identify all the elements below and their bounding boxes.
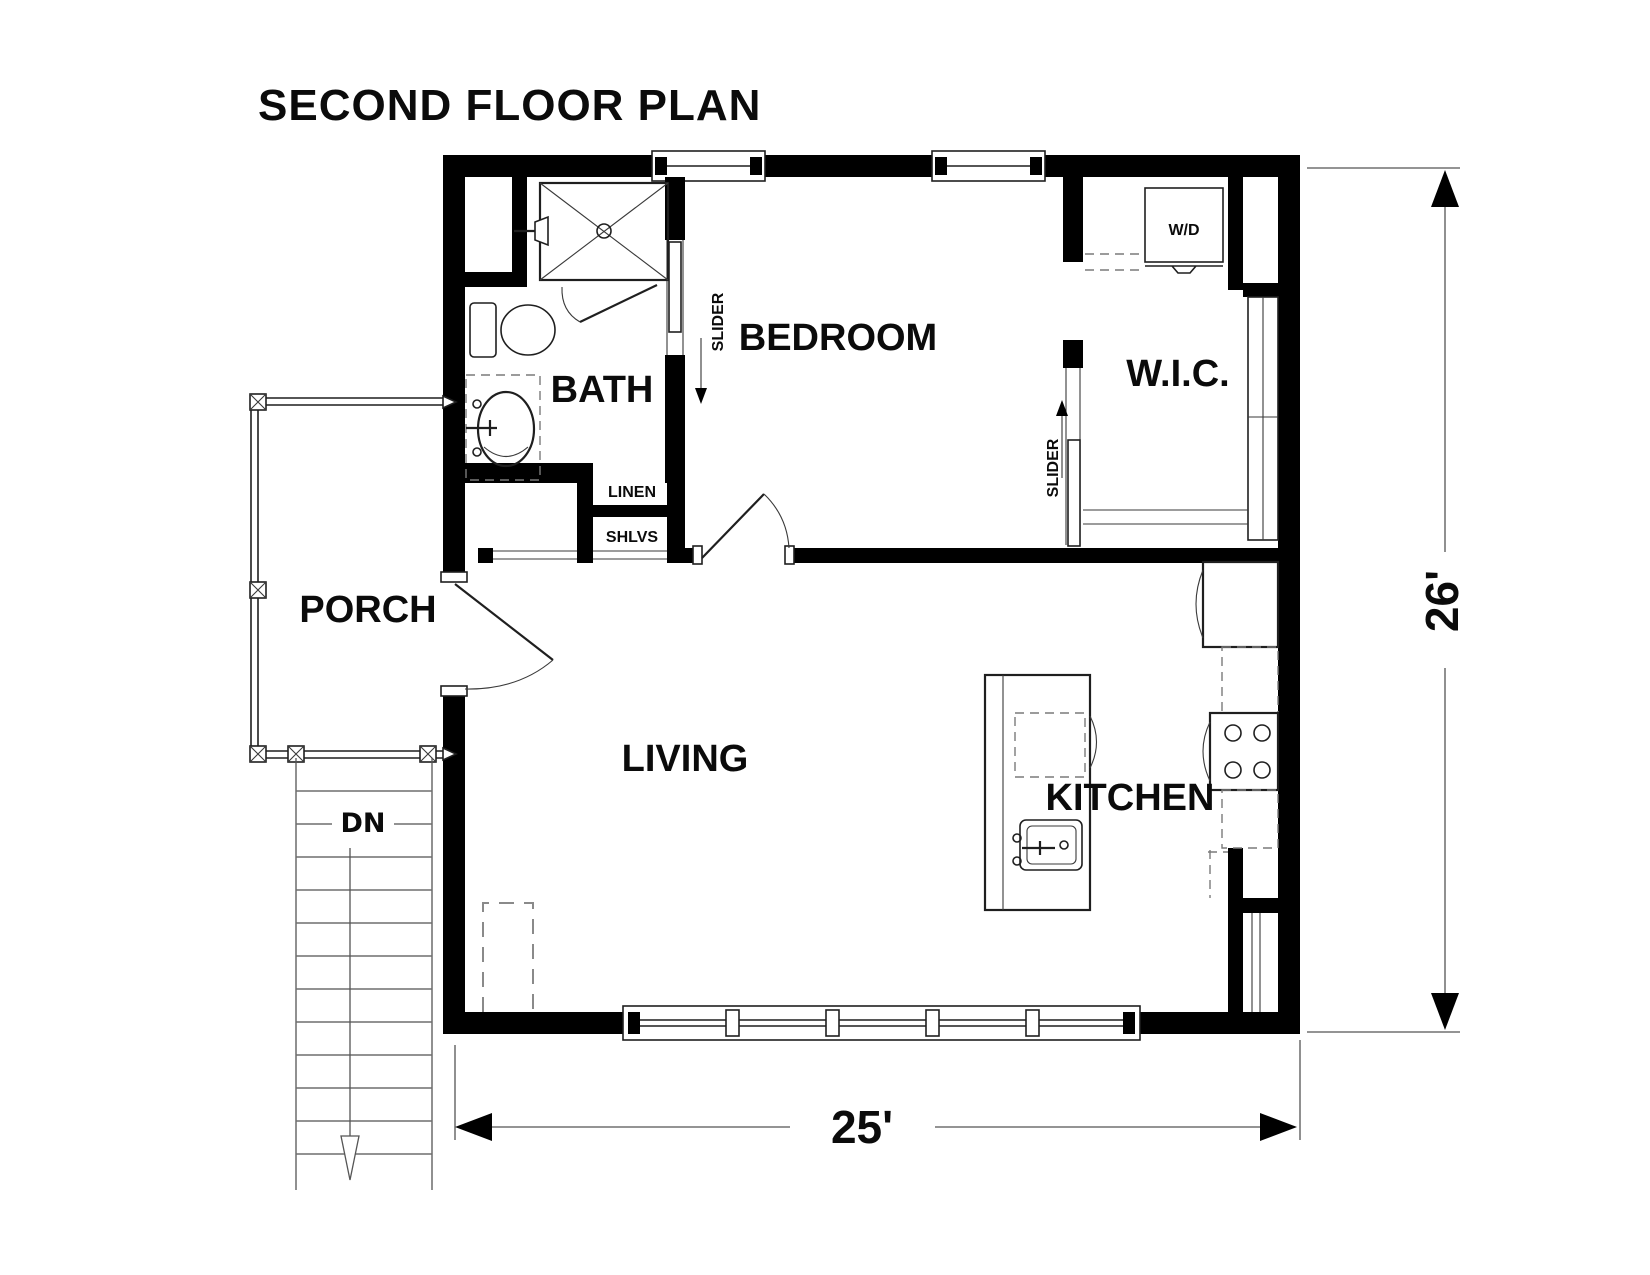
living-label: LIVING — [622, 738, 749, 780]
living-dashed-outline — [483, 903, 533, 1012]
bath-slider-label: SLIDER — [710, 292, 727, 351]
interior-walls — [443, 177, 1300, 1012]
floor-plan-page: SECOND FLOOR PLAN BATH BEDROOM W.I.C. PO… — [0, 0, 1650, 1275]
floor-plan-drawing: SECOND FLOOR PLAN BATH BEDROOM W.I.C. PO… — [0, 0, 1650, 1275]
wic-slider-label: SLIDER — [1045, 438, 1062, 497]
bedroom-window-left — [652, 151, 765, 181]
plan-title: SECOND FLOOR PLAN — [258, 81, 761, 130]
pantry-shelves — [1252, 913, 1260, 1012]
wic-closet-shelves — [1083, 297, 1278, 540]
washer-dryer-label: W/D — [1168, 222, 1199, 239]
living-window-band — [623, 1006, 1140, 1040]
bath-slider-arrow — [695, 338, 707, 404]
kitchen-counter-upper — [1222, 647, 1278, 713]
shower-door — [562, 285, 657, 322]
porch-railings — [251, 396, 456, 760]
toilet — [470, 303, 555, 357]
exterior-walls — [443, 155, 1300, 1034]
bedroom-window-right — [932, 151, 1045, 181]
bedroom-door — [693, 494, 794, 564]
porch-posts — [250, 394, 436, 762]
height-dimension-label: 26' — [1416, 570, 1468, 632]
refrigerator — [1196, 562, 1278, 647]
width-dimension-label: 25' — [831, 1101, 893, 1153]
washer-dryer-unit — [1085, 188, 1223, 273]
bedroom-label: BEDROOM — [739, 317, 937, 359]
front-door — [441, 572, 553, 696]
wic-label: W.I.C. — [1126, 353, 1229, 395]
shower-stall — [540, 183, 668, 280]
porch-label: PORCH — [299, 589, 436, 631]
linen-label: LINEN — [608, 484, 656, 501]
island-sink — [1013, 820, 1082, 870]
stairs-down-label: DN — [340, 808, 385, 839]
shelves-label: SHLVS — [606, 529, 658, 546]
bath-label: BATH — [551, 369, 654, 411]
kitchen-label: KITCHEN — [1046, 777, 1215, 819]
